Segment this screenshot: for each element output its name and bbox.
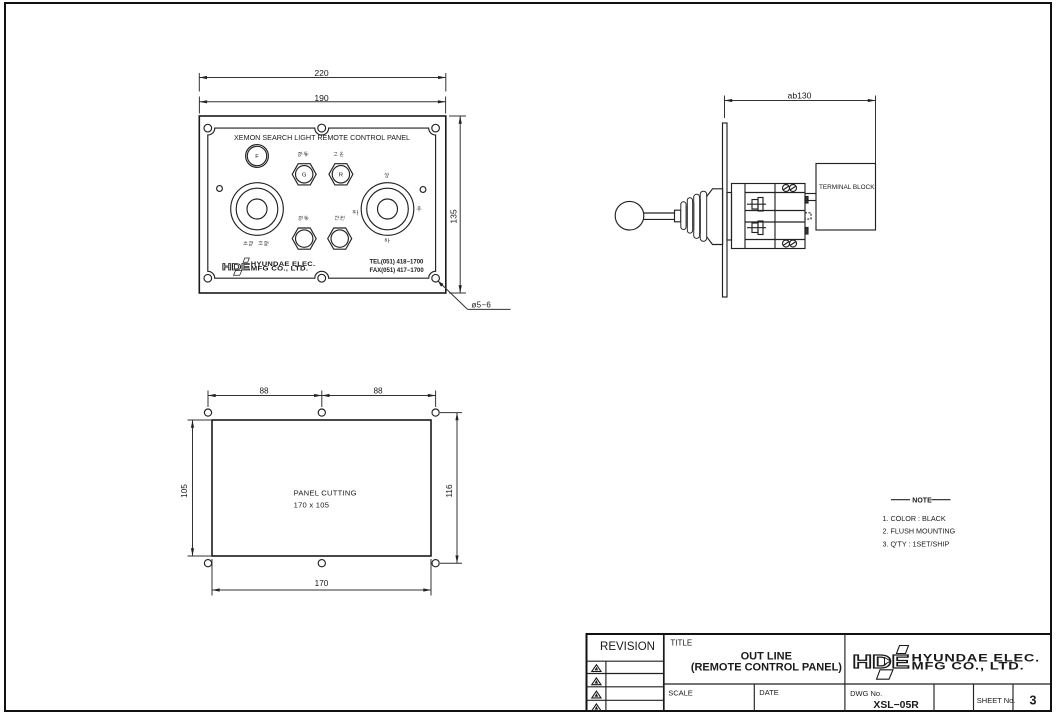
svg-text:XSL−05R: XSL−05R <box>873 700 919 711</box>
svg-text:G: G <box>302 172 307 178</box>
svg-text:SHEET No.: SHEET No. <box>977 696 1016 705</box>
svg-text:TEL(051) 418−1700: TEL(051) 418−1700 <box>370 260 425 266</box>
svg-text:1. COLOR : BLACK: 1. COLOR : BLACK <box>883 514 946 523</box>
svg-text:170 x 105: 170 x 105 <box>294 500 330 509</box>
svg-text:MFG CO., LTD.: MFG CO., LTD. <box>912 660 1025 672</box>
svg-text:190: 190 <box>314 93 329 103</box>
svg-text:DWG No.: DWG No. <box>850 689 882 698</box>
svg-text:TITLE: TITLE <box>670 638 692 647</box>
svg-text:88: 88 <box>259 387 269 396</box>
svg-text:MFG CO., LTD.: MFG CO., LTD. <box>251 267 309 273</box>
svg-text:3: 3 <box>1030 693 1037 707</box>
svg-text:FAX(051) 417−1700: FAX(051) 417−1700 <box>370 268 425 274</box>
svg-text:REVISION: REVISION <box>600 641 655 653</box>
svg-text:SCALE: SCALE <box>668 689 693 698</box>
svg-text:105: 105 <box>180 484 189 498</box>
svg-text:HDE: HDE <box>853 651 910 672</box>
svg-text:88: 88 <box>373 387 383 396</box>
svg-text:ø5−6: ø5−6 <box>472 301 492 310</box>
svg-text:F: F <box>255 154 259 160</box>
svg-text:3. Q'TY : 1SET/SHIP: 3. Q'TY : 1SET/SHIP <box>883 539 950 548</box>
svg-text:DATE: DATE <box>759 688 778 697</box>
svg-text:(REMOTE CONTROL PANEL): (REMOTE CONTROL PANEL) <box>691 661 842 673</box>
svg-text:135: 135 <box>449 209 459 224</box>
svg-text:ab130: ab130 <box>788 90 812 100</box>
svg-text:PANEL CUTTING: PANEL CUTTING <box>294 488 357 497</box>
svg-text:116: 116 <box>445 484 454 497</box>
svg-text:220: 220 <box>314 68 329 78</box>
svg-text:170: 170 <box>315 579 329 588</box>
svg-text:XEMON SEARCH LIGHT REMOTE CONT: XEMON SEARCH LIGHT REMOTE CONTROL PANEL <box>234 133 410 142</box>
svg-text:TERMINAL BLOCK: TERMINAL BLOCK <box>819 184 875 191</box>
svg-text:NOTE: NOTE <box>912 497 932 504</box>
svg-text:R: R <box>339 172 343 178</box>
svg-text:2. FLUSH MOUNTING: 2. FLUSH MOUNTING <box>883 527 956 536</box>
